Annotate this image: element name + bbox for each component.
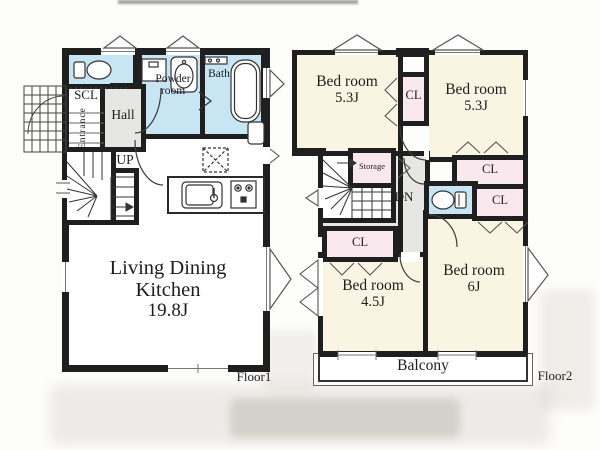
closet-a: [398, 72, 429, 126]
room-bedroom-3: [318, 252, 428, 358]
window-triangle: [300, 260, 318, 288]
room-balcony: [318, 351, 528, 382]
window-triangle: [528, 248, 548, 301]
window-triangle: [300, 288, 318, 316]
room-bath: [200, 50, 266, 139]
stairs-floor1-b: [111, 168, 139, 225]
wall-top-corridor: [396, 48, 429, 57]
closet-c: [472, 184, 528, 221]
window-triangle: [270, 70, 284, 97]
watermark-top-edge: [118, 0, 358, 4]
stairs-floor1-a: [62, 147, 116, 225]
watermark-right: [540, 290, 595, 410]
closet-d: [322, 226, 398, 262]
room-bedroom-1: [292, 50, 403, 156]
room-storage: [348, 148, 396, 188]
room-powder: [137, 50, 208, 139]
vent-triangle: [167, 36, 199, 48]
wall-step-left: [292, 148, 326, 156]
kitchen-counter: [167, 176, 265, 214]
window-triangle: [306, 190, 318, 206]
porch-hatch: [24, 86, 66, 152]
room-hall: [100, 84, 146, 152]
watermark-bottom: [50, 385, 550, 445]
wall-stub-wc: [110, 83, 138, 89]
vent-triangle: [333, 35, 381, 50]
window-triangle: [270, 249, 291, 309]
vent-triangle: [433, 35, 483, 50]
room-bedroom-4: [423, 210, 528, 358]
floor2-label: Floor2: [528, 369, 582, 383]
watermark-side: [262, 330, 317, 390]
floorplan-image: SCL Entrance Hall Powder room Bath UP Li…: [0, 0, 600, 450]
watermark-bottom-dark: [230, 398, 460, 438]
room-bedroom-2: [424, 50, 528, 162]
front-door-arc: [28, 96, 64, 134]
room-wc-floor2: [424, 181, 478, 219]
floor1-label: Floor1: [228, 370, 280, 384]
vent-triangle: [104, 36, 136, 48]
